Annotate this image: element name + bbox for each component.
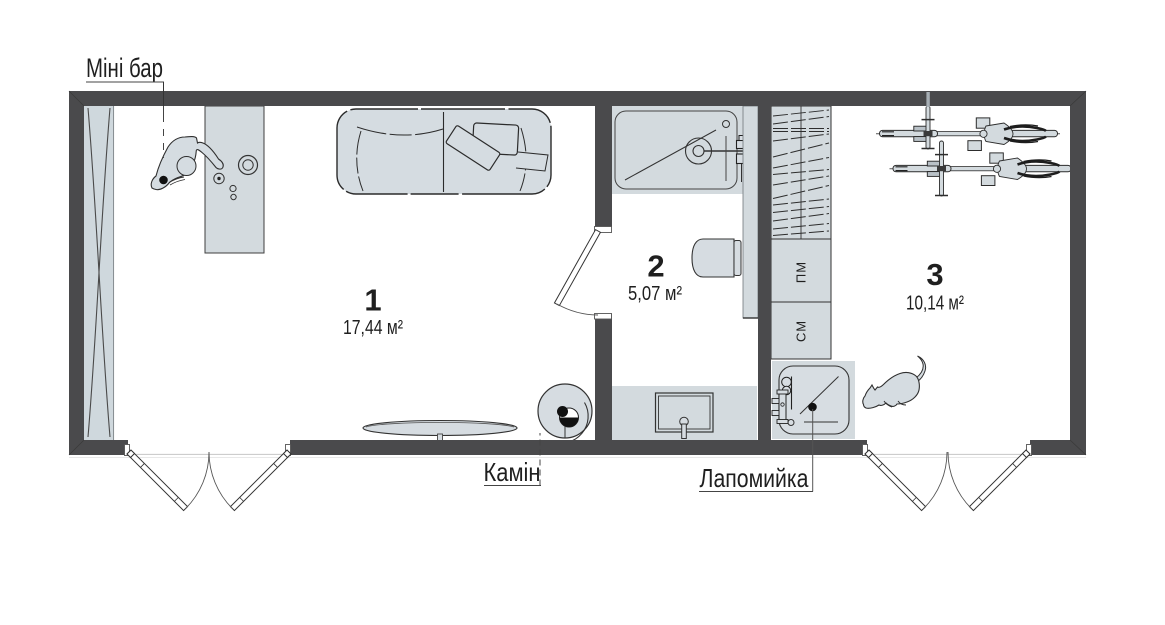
- svg-text:3: 3: [926, 257, 943, 292]
- svg-text:СМ: СМ: [794, 320, 809, 342]
- svg-text:10,14 м²: 10,14 м²: [906, 293, 964, 315]
- svg-text:1: 1: [364, 283, 381, 318]
- svg-text:5,07 м²: 5,07 м²: [628, 283, 682, 305]
- svg-text:Камін: Камін: [484, 457, 541, 487]
- svg-text:Лапомийка: Лапомийка: [700, 463, 809, 493]
- svg-text:17,44 м²: 17,44 м²: [343, 317, 403, 339]
- svg-text:ПМ: ПМ: [794, 261, 809, 283]
- svg-text:2: 2: [647, 249, 664, 284]
- svg-text:Міні бар: Міні бар: [86, 53, 163, 83]
